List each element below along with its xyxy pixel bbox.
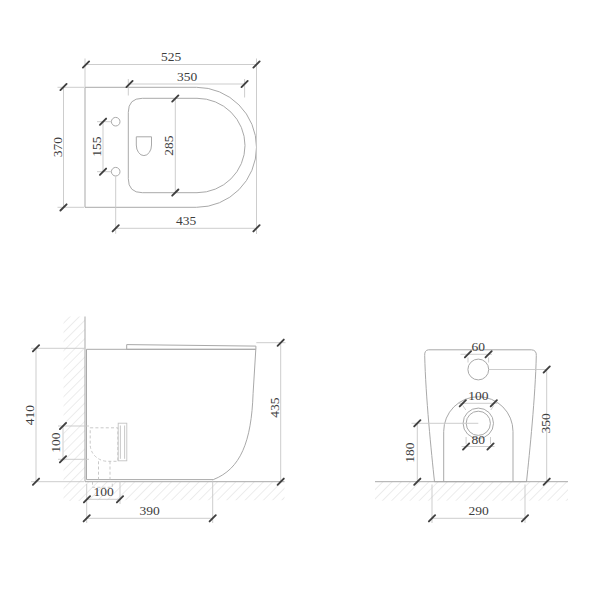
dim-label-350-rear: 350: [539, 413, 554, 434]
dim-label-350: 350: [177, 69, 198, 84]
dim-rear-inlet-height: 350: [539, 366, 554, 484]
wall-hatching: [64, 317, 86, 502]
dim-label-435-side: 435: [267, 397, 282, 418]
dim-top-hole-spacing: 155: [89, 119, 106, 175]
toilet-body-side-outline: [87, 349, 256, 479]
dim-rear-base-width: 290: [429, 503, 528, 521]
pipe-flange-outline: [118, 423, 127, 461]
dim-top-bowl-length: 285: [161, 95, 178, 195]
dim-side-trap-diameter: 100: [49, 423, 67, 463]
dim-top-overall-width: 525: [83, 49, 260, 68]
dim-label-100-side-h: 100: [93, 484, 114, 499]
floor-hatching-rear: [375, 482, 568, 501]
dim-label-390: 390: [139, 503, 160, 518]
dim-top-overall-depth: 370: [50, 84, 67, 211]
seat-opening-outline: [128, 98, 245, 192]
rear-view: 60 100 80 180 350 290: [375, 339, 568, 524]
dim-label-285: 285: [161, 135, 176, 156]
dim-side-total-height: 410: [22, 345, 39, 485]
floor-hatching-side: [85, 482, 285, 501]
dim-top-seat-length: 435: [113, 213, 260, 231]
dim-rear-inlet-width: 60: [461, 339, 493, 358]
seat-lid-side-outline: [127, 345, 256, 350]
dim-label-525: 525: [161, 49, 182, 64]
dim-label-100-side-v: 100: [49, 432, 64, 453]
dim-label-435-top: 435: [176, 213, 197, 228]
side-view: 410 100 100 390 435: [22, 317, 286, 524]
dim-rear-outlet-outer: 100: [459, 388, 498, 406]
water-inlet-hole: [468, 359, 489, 380]
dim-label-410: 410: [22, 405, 37, 426]
dim-label-290: 290: [468, 503, 489, 518]
dim-label-100-rear: 100: [468, 388, 489, 403]
waste-pipe-hidden-outline: [90, 423, 127, 487]
dim-rear-outlet-height: 180: [402, 420, 421, 485]
technical-drawing-page: 525 350 370 155 285 435: [0, 0, 600, 600]
dim-side-front-height: 435: [267, 340, 284, 485]
dim-label-155: 155: [89, 136, 104, 157]
fixing-hole-top: [111, 117, 120, 126]
dim-label-80: 80: [472, 432, 486, 447]
top-view: 525 350 370 155 285 435: [50, 49, 260, 234]
dim-label-370: 370: [50, 137, 65, 158]
flush-spout-outline: [136, 137, 151, 156]
dim-side-base-depth: 390: [84, 503, 216, 521]
dim-label-60: 60: [472, 339, 486, 354]
dim-top-seat-width: 350: [126, 69, 247, 88]
fixing-hole-bottom: [111, 167, 120, 176]
toilet-dimension-drawing: 525 350 370 155 285 435: [0, 0, 600, 600]
dim-label-180: 180: [402, 442, 417, 463]
